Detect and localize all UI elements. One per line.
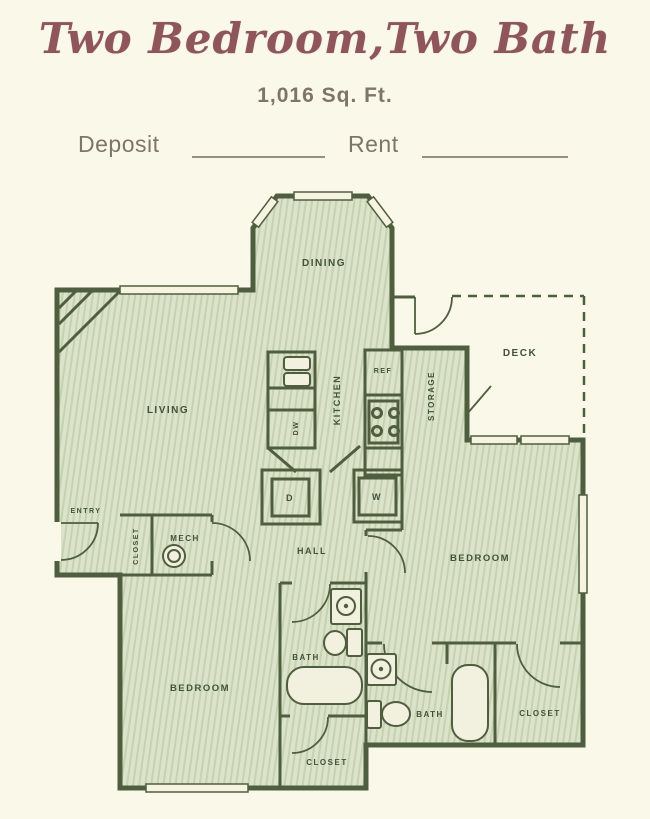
bedroom-left-window (146, 784, 248, 792)
bath-main-tub (287, 667, 362, 704)
bedroom-right-side-window (579, 495, 587, 593)
bath-second-toilet (382, 702, 410, 726)
bath-main-label: BATH (292, 653, 320, 662)
bath-second-tub (452, 665, 488, 741)
dishwasher-label: DW (293, 421, 300, 436)
living-window (120, 286, 238, 294)
floor-plan-sheet: Two Bedroom,Two Bath 1,016 Sq. Ft. Depos… (0, 0, 650, 819)
bedroom-left-label: BEDROOM (170, 683, 230, 694)
deck-label: DECK (503, 348, 537, 359)
bedroom-right-deck-door (471, 436, 517, 444)
bedroom-right-label: BEDROOM (450, 553, 510, 564)
bath-second-toilet-tank (367, 701, 381, 728)
kitchen-label: KITCHEN (332, 375, 342, 426)
refrigerator-label: REF (374, 368, 393, 375)
living-label: LIVING (147, 405, 189, 416)
bath-second-drain (379, 667, 383, 671)
dining-window (294, 192, 352, 200)
deck-door-arc (415, 297, 452, 334)
entry-door-opening (53, 522, 61, 561)
kitchen-sink-bowl (284, 373, 310, 386)
bath-main-toilet-tank (347, 629, 362, 656)
closet-right-label: CLOSET (519, 709, 560, 718)
entry-label: ENTRY (71, 508, 102, 515)
bath-main-drain (344, 604, 348, 608)
dining-label: DINING (302, 258, 346, 269)
storage-label: STORAGE (427, 371, 436, 421)
hall-label: HALL (297, 546, 327, 556)
floor-plan-drawing: DINING LIVING KITCHEN STORAGE DECK ENTRY… (0, 0, 650, 819)
deck-railing (452, 296, 584, 440)
bath-main-toilet (324, 631, 346, 655)
water-heater-inner (168, 550, 180, 562)
bath-second-label: BATH (416, 710, 444, 719)
storage-door-leaf (467, 386, 491, 414)
dryer-label: D (286, 493, 294, 503)
kitchen-sink (284, 357, 310, 370)
entry-closet-label: CLOSET (133, 527, 140, 564)
closet-bottom-label: CLOSET (306, 758, 347, 767)
washer-label: W (372, 492, 382, 502)
bedroom-right-top-window (521, 436, 569, 444)
mech-label: MECH (170, 534, 200, 543)
